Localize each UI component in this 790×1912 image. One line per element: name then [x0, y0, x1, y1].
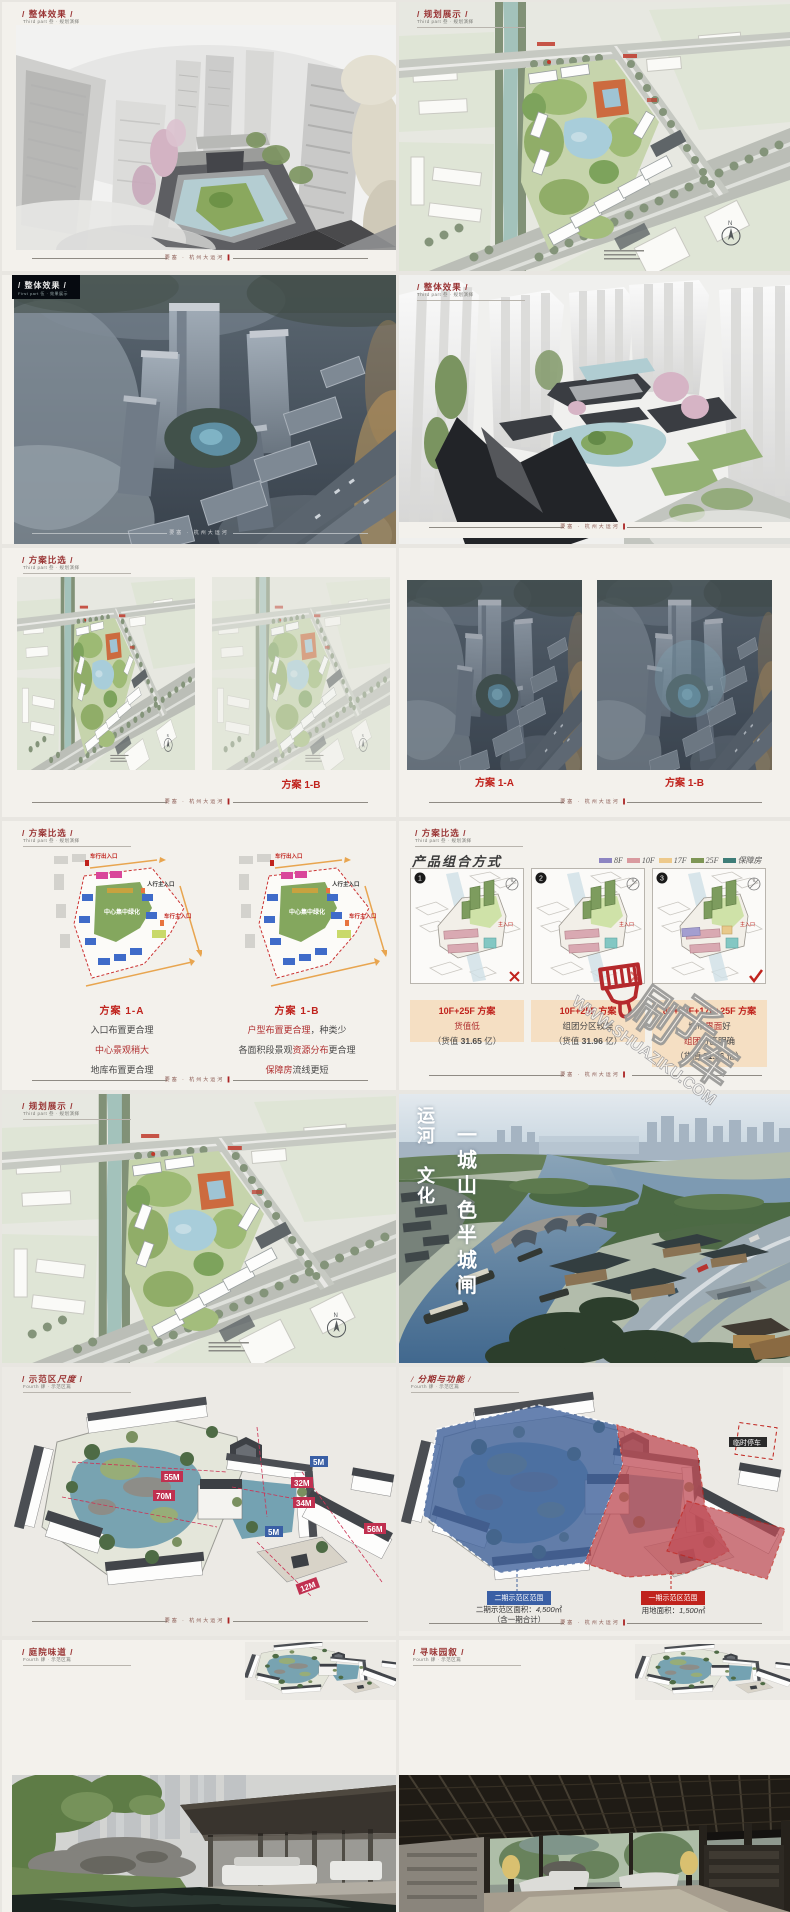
- svg-text:3: 3: [660, 876, 664, 883]
- svg-text:中心集中绿化: 中心集中绿化: [104, 908, 140, 916]
- svg-text:车行出入口: 车行出入口: [90, 852, 118, 860]
- svg-text:主入口: 主入口: [498, 921, 513, 928]
- svg-text:N: N: [728, 221, 732, 227]
- svg-text:人行主入口: 人行主入口: [147, 880, 175, 888]
- svg-text:5M: 5M: [313, 1458, 324, 1467]
- svg-text:56M: 56M: [367, 1525, 383, 1534]
- svg-text:34M: 34M: [296, 1499, 312, 1508]
- svg-text:1: 1: [418, 876, 422, 883]
- svg-text:55M: 55M: [164, 1473, 180, 1482]
- svg-text:2: 2: [539, 876, 543, 883]
- svg-text:车行主入口: 车行主入口: [164, 912, 192, 920]
- svg-text:32M: 32M: [294, 1479, 310, 1488]
- svg-text:70M: 70M: [156, 1492, 172, 1501]
- svg-text:临时停车: 临时停车: [733, 1438, 761, 1447]
- svg-text:5M: 5M: [268, 1528, 279, 1537]
